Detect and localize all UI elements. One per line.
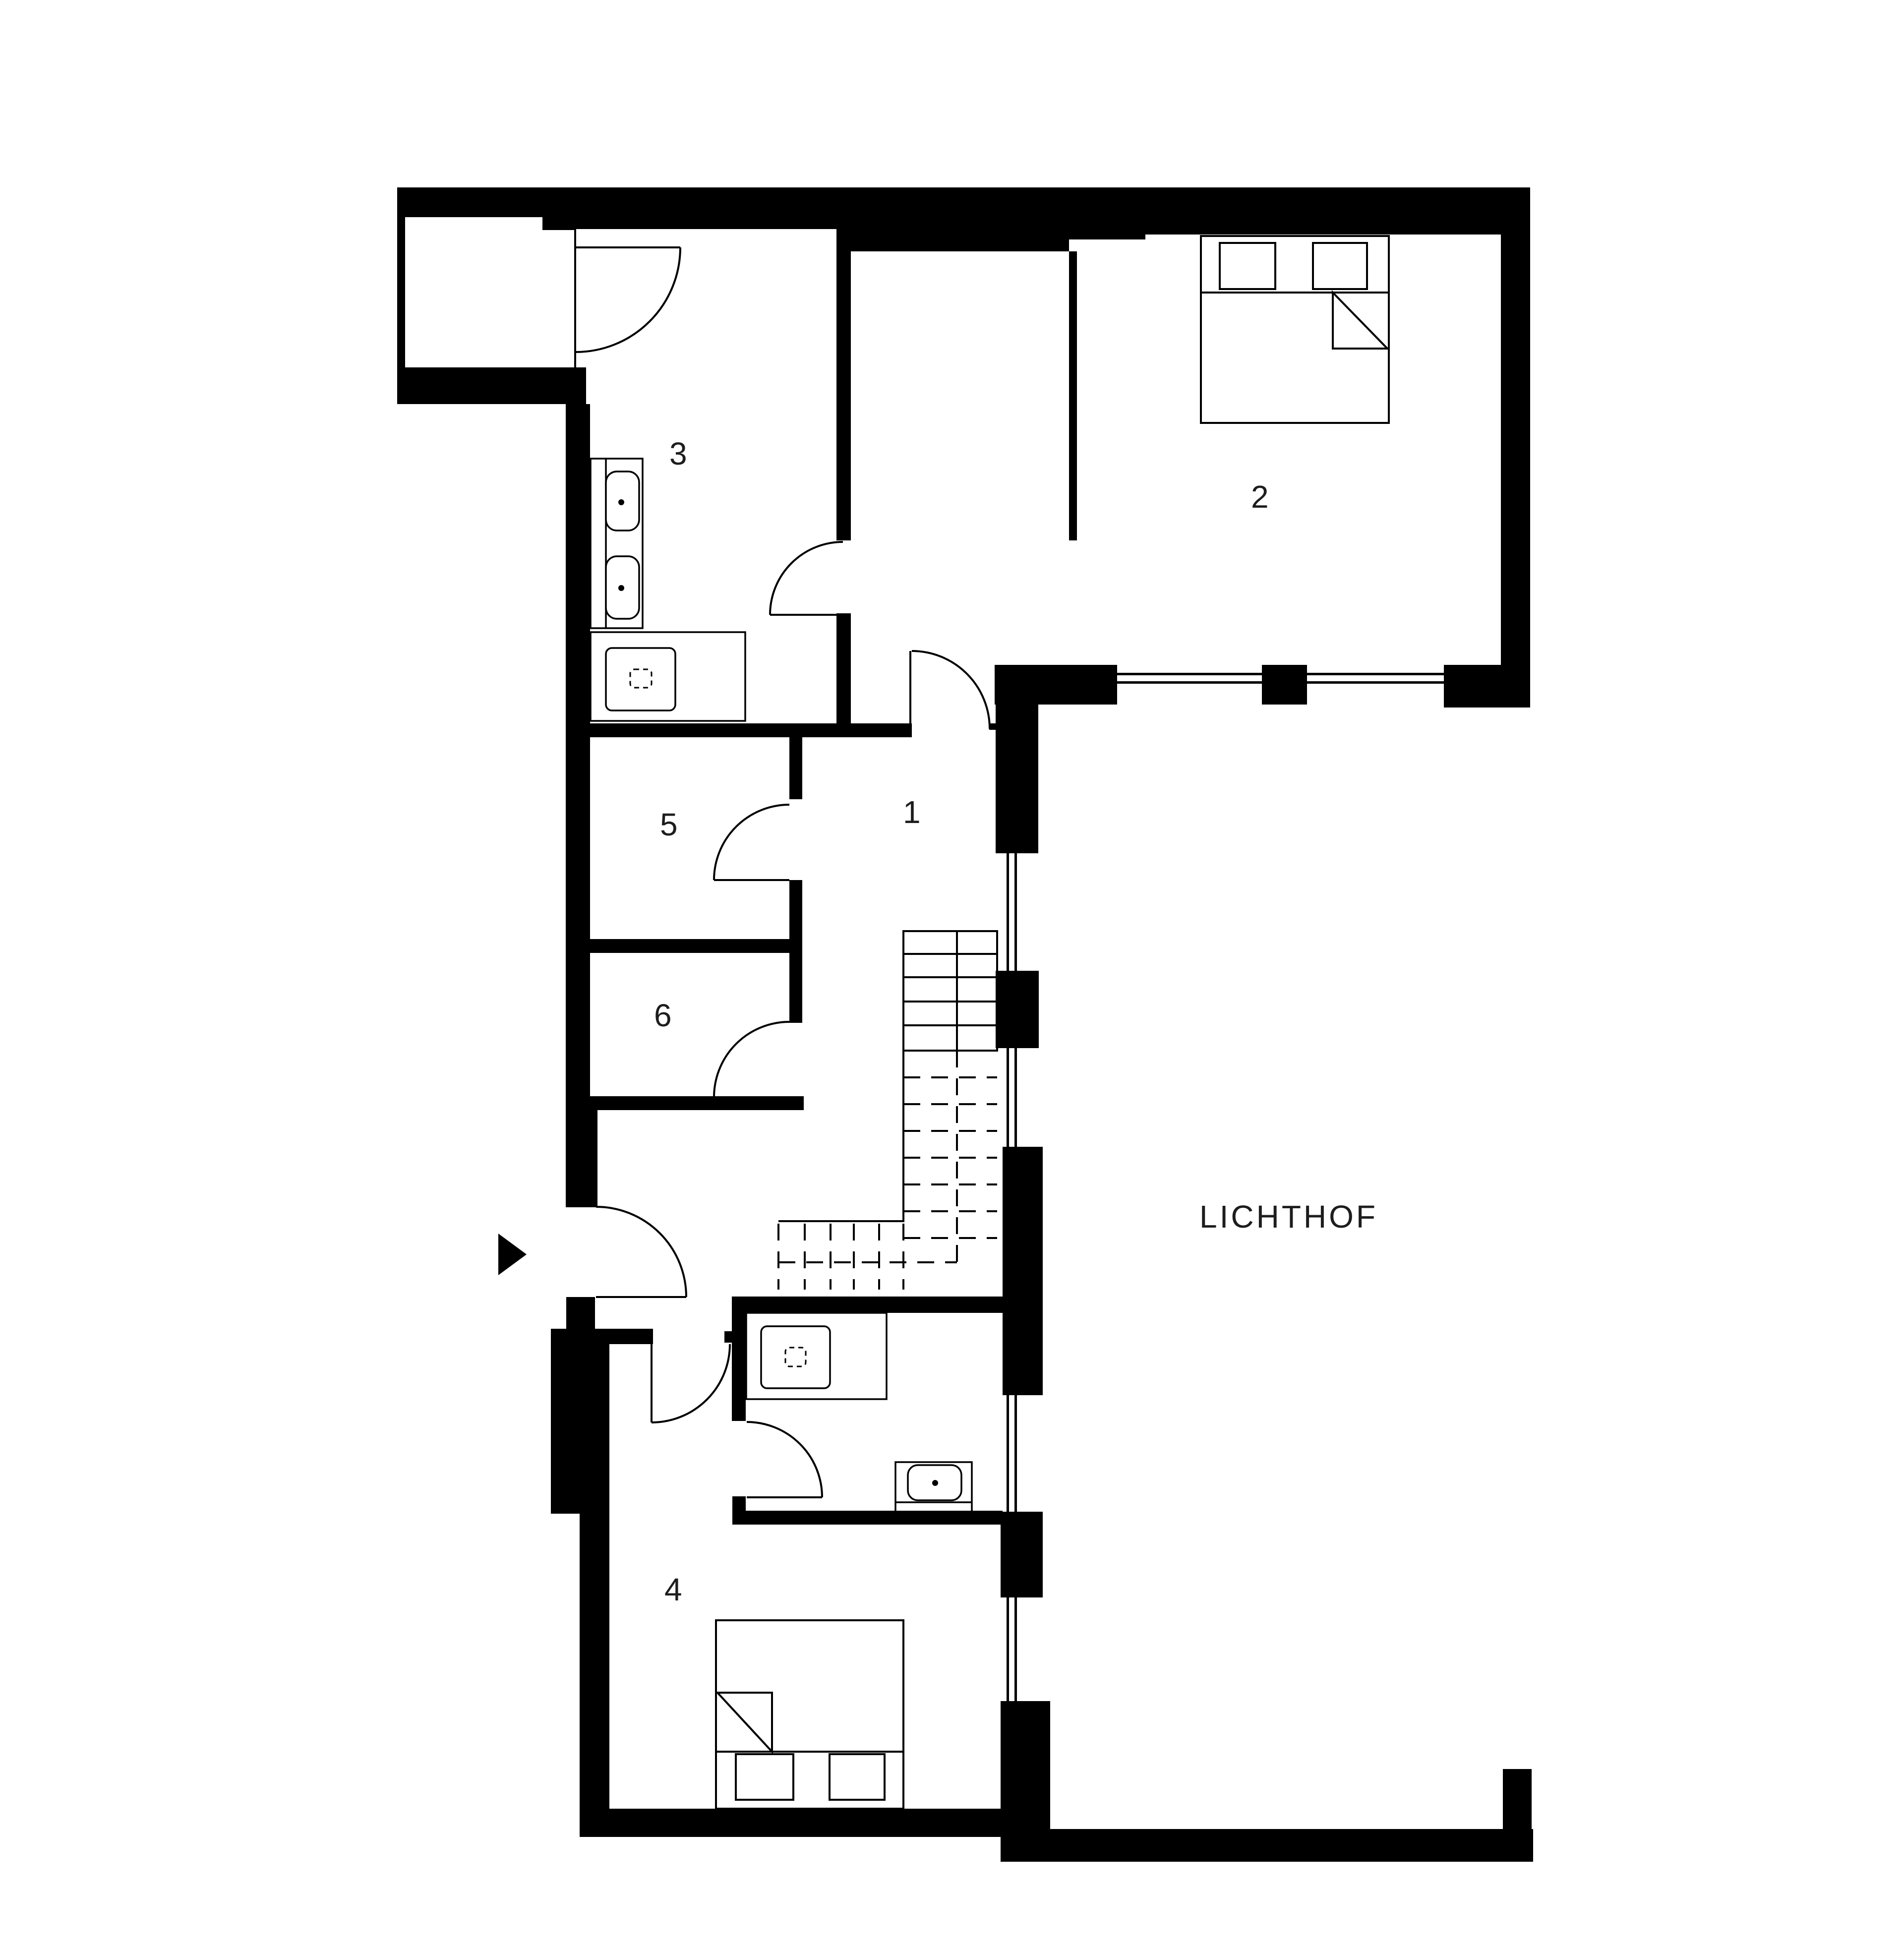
svg-text:3: 3 <box>669 436 687 472</box>
svg-text:5: 5 <box>660 807 678 842</box>
svg-text:4: 4 <box>664 1572 682 1607</box>
svg-text:LICHTHOF: LICHTHOF <box>1199 1199 1378 1235</box>
svg-text:2: 2 <box>1251 479 1269 515</box>
svg-text:1: 1 <box>903 794 921 830</box>
svg-text:6: 6 <box>654 998 672 1033</box>
